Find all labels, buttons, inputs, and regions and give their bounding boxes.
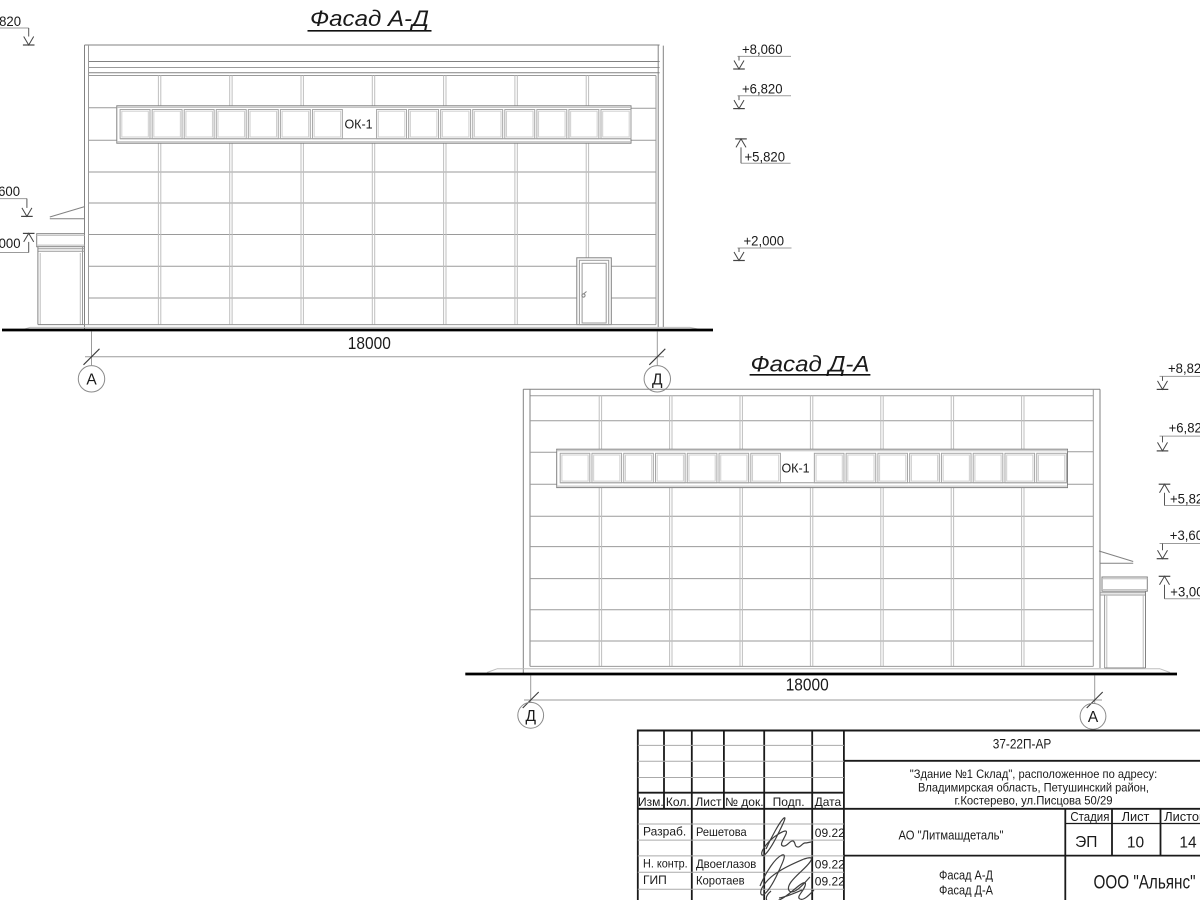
svg-text:Лист: Лист [1122, 809, 1150, 824]
svg-text:Фасад А-Д: Фасад А-Д [939, 869, 993, 883]
svg-text:10: 10 [1127, 835, 1145, 852]
svg-text:Н. контр.: Н. контр. [643, 857, 688, 871]
svg-text:Дата: Дата [815, 795, 842, 809]
svg-text:"Здание №1 Склад", расположенн: "Здание №1 Склад", расположенное по адре… [910, 767, 1157, 781]
svg-text:+6,820: +6,820 [1169, 420, 1200, 435]
svg-text:+3,600: +3,600 [0, 184, 20, 199]
svg-text:18000: 18000 [348, 333, 391, 353]
svg-text:37-22П-АР: 37-22П-АР [993, 736, 1052, 752]
svg-text:+5,820: +5,820 [745, 149, 786, 164]
svg-text:09.22: 09.22 [815, 857, 845, 871]
svg-text:ОК-1: ОК-1 [781, 462, 809, 476]
svg-text:ГИП: ГИП [643, 873, 667, 887]
svg-text:Д: Д [652, 371, 663, 388]
svg-text:А: А [1088, 709, 1099, 726]
svg-text:+5,820: +5,820 [1170, 491, 1200, 506]
svg-text:Лист: Лист [695, 795, 722, 809]
svg-text:Изм.: Изм. [638, 795, 664, 809]
svg-text:+3,000: +3,000 [1170, 584, 1200, 599]
svg-text:Владимирская область, Петушинс: Владимирская область, Петушинский район, [918, 780, 1149, 794]
svg-text:+8,060: +8,060 [742, 42, 783, 57]
svg-text:+8,820: +8,820 [0, 14, 21, 29]
svg-text:Стадия: Стадия [1070, 809, 1109, 824]
svg-text:09.22: 09.22 [815, 826, 845, 840]
svg-text:А: А [86, 371, 97, 388]
svg-text:18000: 18000 [786, 675, 829, 695]
svg-text:14: 14 [1179, 835, 1197, 852]
svg-text:ОК-1: ОК-1 [344, 117, 372, 131]
svg-text:+8,820: +8,820 [1168, 361, 1200, 376]
svg-text:+3,600: +3,600 [1170, 528, 1200, 543]
svg-text:Разраб.: Разраб. [643, 824, 686, 838]
svg-text:+3,000: +3,000 [0, 236, 21, 251]
svg-text:Листов: Листов [1164, 809, 1200, 824]
svg-text:Фасад А-Д: Фасад А-Д [310, 6, 429, 31]
svg-text:Двоеглазов: Двоеглазов [696, 857, 756, 871]
svg-text:Подп.: Подп. [773, 795, 805, 809]
svg-text:Д: Д [525, 708, 536, 725]
svg-text:Решетова: Решетова [696, 825, 747, 839]
svg-text:ООО "Альянс": ООО "Альянс" [1094, 873, 1196, 894]
svg-text:Кол.: Кол. [666, 795, 690, 809]
svg-text:+6,820: +6,820 [742, 81, 783, 96]
svg-text:+2,000: +2,000 [744, 233, 785, 248]
svg-text:Фасад Д-А: Фасад Д-А [939, 883, 994, 897]
svg-text:ЭП: ЭП [1075, 834, 1097, 851]
svg-text:АО "Литмашдеталь": АО "Литмашдеталь" [899, 828, 1004, 842]
svg-text:Фасад Д-А: Фасад Д-А [751, 352, 870, 377]
svg-text:Коротаев: Коротаев [696, 874, 745, 888]
svg-text:г.Костерево, ул.Писцова 50/29: г.Костерево, ул.Писцова 50/29 [954, 793, 1112, 807]
svg-text:09.22: 09.22 [815, 874, 845, 888]
svg-text:№ док.: № док. [725, 795, 763, 809]
